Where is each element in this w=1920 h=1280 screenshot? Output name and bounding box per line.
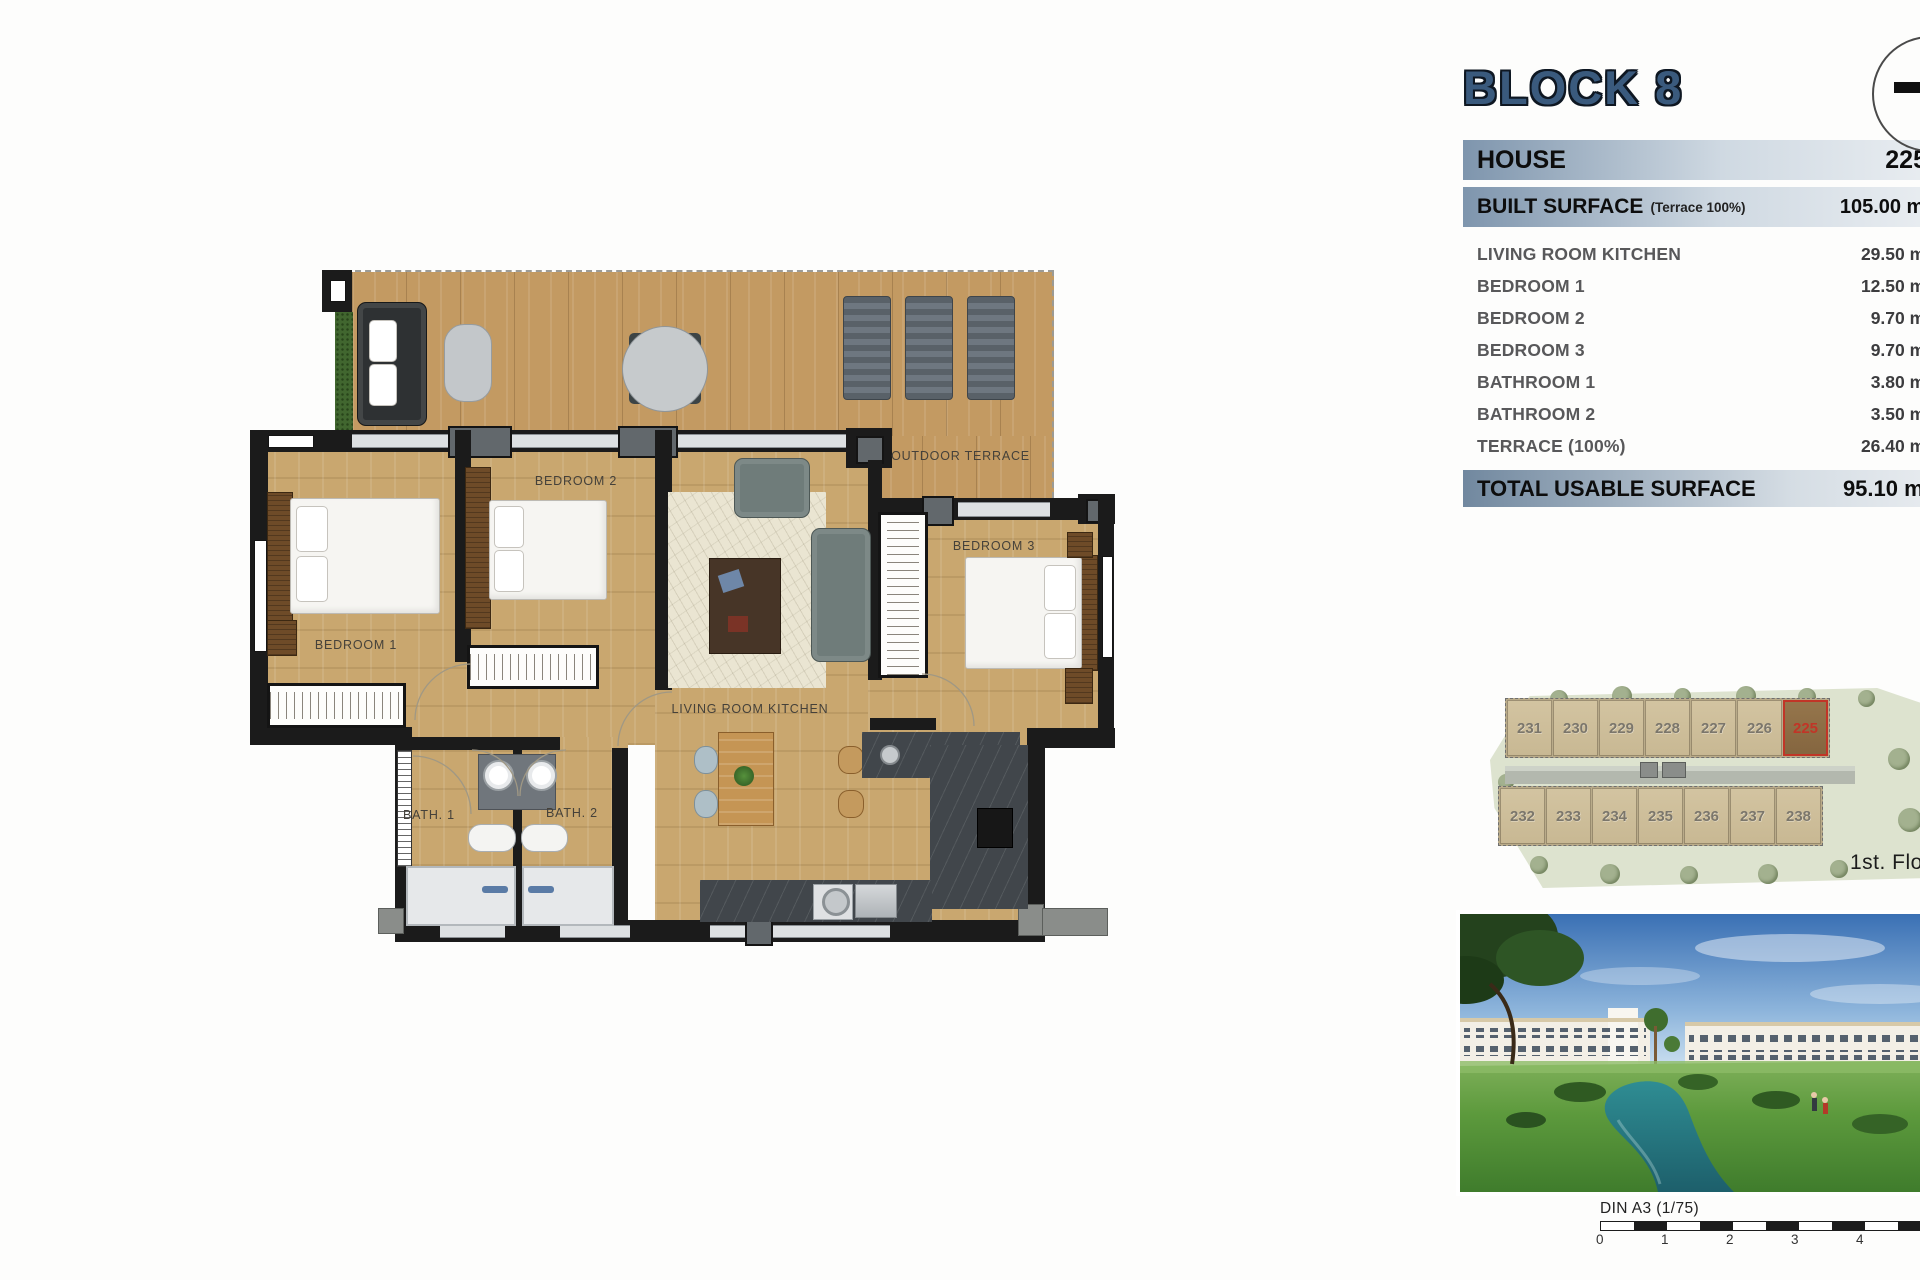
room-label-bedroom3: BEDROOM 3 bbox=[930, 539, 1058, 553]
tree-icon bbox=[1600, 864, 1620, 884]
unit-cell: 238 bbox=[1776, 788, 1821, 844]
site-plan-structure bbox=[1662, 762, 1686, 778]
block-title: BLOCK 8 bbox=[1463, 60, 1920, 115]
scale-segment bbox=[1799, 1222, 1832, 1230]
scale-tick: 4 bbox=[1856, 1232, 1864, 1247]
scale-segment bbox=[1667, 1222, 1700, 1230]
unit-cell: 230 bbox=[1553, 700, 1598, 756]
room-area-row: BATHROOM 23.50 m² bbox=[1463, 398, 1920, 430]
room-area-row: BEDROOM 29.70 m² bbox=[1463, 302, 1920, 334]
scale-bar-segments bbox=[1600, 1221, 1920, 1231]
unit-cell-highlighted: 225 bbox=[1783, 700, 1828, 756]
unit-cell: 229 bbox=[1599, 700, 1644, 756]
room-label-bedroom2: BEDROOM 2 bbox=[512, 474, 640, 488]
scale-segment bbox=[1733, 1222, 1766, 1230]
room-area-value: 3.80 m² bbox=[1871, 372, 1920, 393]
floor-plan: OUTDOOR TERRACE BEDROOM 1 BEDROOM 2 BEDR… bbox=[250, 268, 1130, 958]
room-area-row: BATHROOM 13.80 m² bbox=[1463, 366, 1920, 398]
site-plan: 231 230 229 228 227 226 225 232 233 234 … bbox=[1490, 688, 1920, 893]
site-plan-building-row-bottom: 232 233 234 235 236 237 238 bbox=[1498, 786, 1823, 846]
resort-photo bbox=[1460, 914, 1920, 1192]
scale-tick: 2 bbox=[1726, 1232, 1734, 1247]
tree-icon bbox=[1898, 808, 1920, 832]
unit-cell: 227 bbox=[1691, 700, 1736, 756]
room-area-list: LIVING ROOM KITCHEN29.50 m² BEDROOM 112.… bbox=[1463, 238, 1920, 462]
room-area-label: BATHROOM 1 bbox=[1477, 372, 1595, 393]
scale-segment bbox=[1865, 1222, 1898, 1230]
room-label-terrace: OUTDOOR TERRACE bbox=[878, 449, 1043, 463]
scale-tick: 3 bbox=[1791, 1232, 1799, 1247]
scale-segment bbox=[1766, 1222, 1799, 1230]
tree-icon bbox=[1680, 866, 1698, 884]
room-area-label: BEDROOM 2 bbox=[1477, 308, 1585, 329]
room-area-row: BEDROOM 39.70 m² bbox=[1463, 334, 1920, 366]
room-area-value: 3.50 m² bbox=[1871, 404, 1920, 425]
north-indicator-needle bbox=[1894, 82, 1920, 93]
floor-level-label: 1st. Floor bbox=[1850, 851, 1920, 875]
unit-cell: 235 bbox=[1638, 788, 1683, 844]
site-plan-structure bbox=[1640, 762, 1658, 778]
built-surface-label: BUILT SURFACE bbox=[1463, 195, 1643, 219]
built-surface-note: (Terrace 100%) bbox=[1650, 200, 1745, 215]
tree-icon bbox=[1530, 856, 1548, 874]
room-area-value: 9.70 m² bbox=[1871, 340, 1920, 361]
scale-segment bbox=[1601, 1222, 1634, 1230]
door-arcs bbox=[250, 268, 1130, 958]
total-surface-value: 95.10 m² bbox=[1843, 476, 1920, 502]
house-row: HOUSE 225 bbox=[1463, 140, 1920, 180]
room-label-bedroom1: BEDROOM 1 bbox=[292, 638, 420, 652]
summary-panel: BLOCK 8 HOUSE 225 BUILT SURFACE (Terrace… bbox=[1463, 60, 1920, 115]
room-label-bath2: BATH. 2 bbox=[533, 806, 611, 820]
room-area-value: 26.40 m² bbox=[1861, 436, 1920, 457]
room-area-label: BATHROOM 2 bbox=[1477, 404, 1595, 425]
total-surface-label: TOTAL USABLE SURFACE bbox=[1463, 476, 1756, 502]
room-label-bath1: BATH. 1 bbox=[390, 808, 468, 822]
tree-icon bbox=[1858, 690, 1875, 707]
built-surface-row: BUILT SURFACE (Terrace 100%) 105.00 m² bbox=[1463, 187, 1920, 227]
scale-bar-label: DIN A3 (1/75) bbox=[1600, 1200, 1920, 1218]
north-indicator-icon bbox=[1872, 36, 1920, 152]
room-area-label: LIVING ROOM KITCHEN bbox=[1477, 244, 1681, 265]
house-label: HOUSE bbox=[1463, 146, 1566, 175]
photo-frame bbox=[1456, 910, 1920, 1196]
room-area-row: TERRACE (100%)26.40 m² bbox=[1463, 430, 1920, 462]
room-area-row: BEDROOM 112.50 m² bbox=[1463, 270, 1920, 302]
room-area-label: BEDROOM 3 bbox=[1477, 340, 1585, 361]
scale-segment bbox=[1700, 1222, 1733, 1230]
unit-cell: 231 bbox=[1507, 700, 1552, 756]
scale-tick: 0 bbox=[1596, 1232, 1604, 1247]
unit-cell: 234 bbox=[1592, 788, 1637, 844]
scale-segment bbox=[1832, 1222, 1865, 1230]
room-area-row: LIVING ROOM KITCHEN29.50 m² bbox=[1463, 238, 1920, 270]
room-area-value: 12.50 m² bbox=[1861, 276, 1920, 297]
tree-icon bbox=[1758, 864, 1778, 884]
scale-segment bbox=[1634, 1222, 1667, 1230]
room-label-living: LIVING ROOM KITCHEN bbox=[670, 702, 830, 716]
room-area-value: 29.50 m² bbox=[1861, 244, 1920, 265]
tree-icon bbox=[1830, 860, 1848, 878]
scale-tick: 1 bbox=[1661, 1232, 1669, 1247]
scale-bar: DIN A3 (1/75) 0 1 2 3 4 bbox=[1600, 1200, 1920, 1231]
room-area-label: TERRACE (100%) bbox=[1477, 436, 1626, 457]
unit-cell: 237 bbox=[1730, 788, 1775, 844]
unit-cell: 228 bbox=[1645, 700, 1690, 756]
total-surface-row: TOTAL USABLE SURFACE 95.10 m² bbox=[1463, 470, 1920, 507]
scale-segment bbox=[1898, 1222, 1920, 1230]
unit-cell: 233 bbox=[1546, 788, 1591, 844]
tree-icon bbox=[1888, 748, 1910, 770]
unit-cell: 232 bbox=[1500, 788, 1545, 844]
unit-cell: 236 bbox=[1684, 788, 1729, 844]
built-surface-value: 105.00 m² bbox=[1840, 196, 1920, 219]
site-plan-building-row-top: 231 230 229 228 227 226 225 bbox=[1505, 698, 1830, 758]
unit-cell: 226 bbox=[1737, 700, 1782, 756]
room-area-value: 9.70 m² bbox=[1871, 308, 1920, 329]
room-area-label: BEDROOM 1 bbox=[1477, 276, 1585, 297]
